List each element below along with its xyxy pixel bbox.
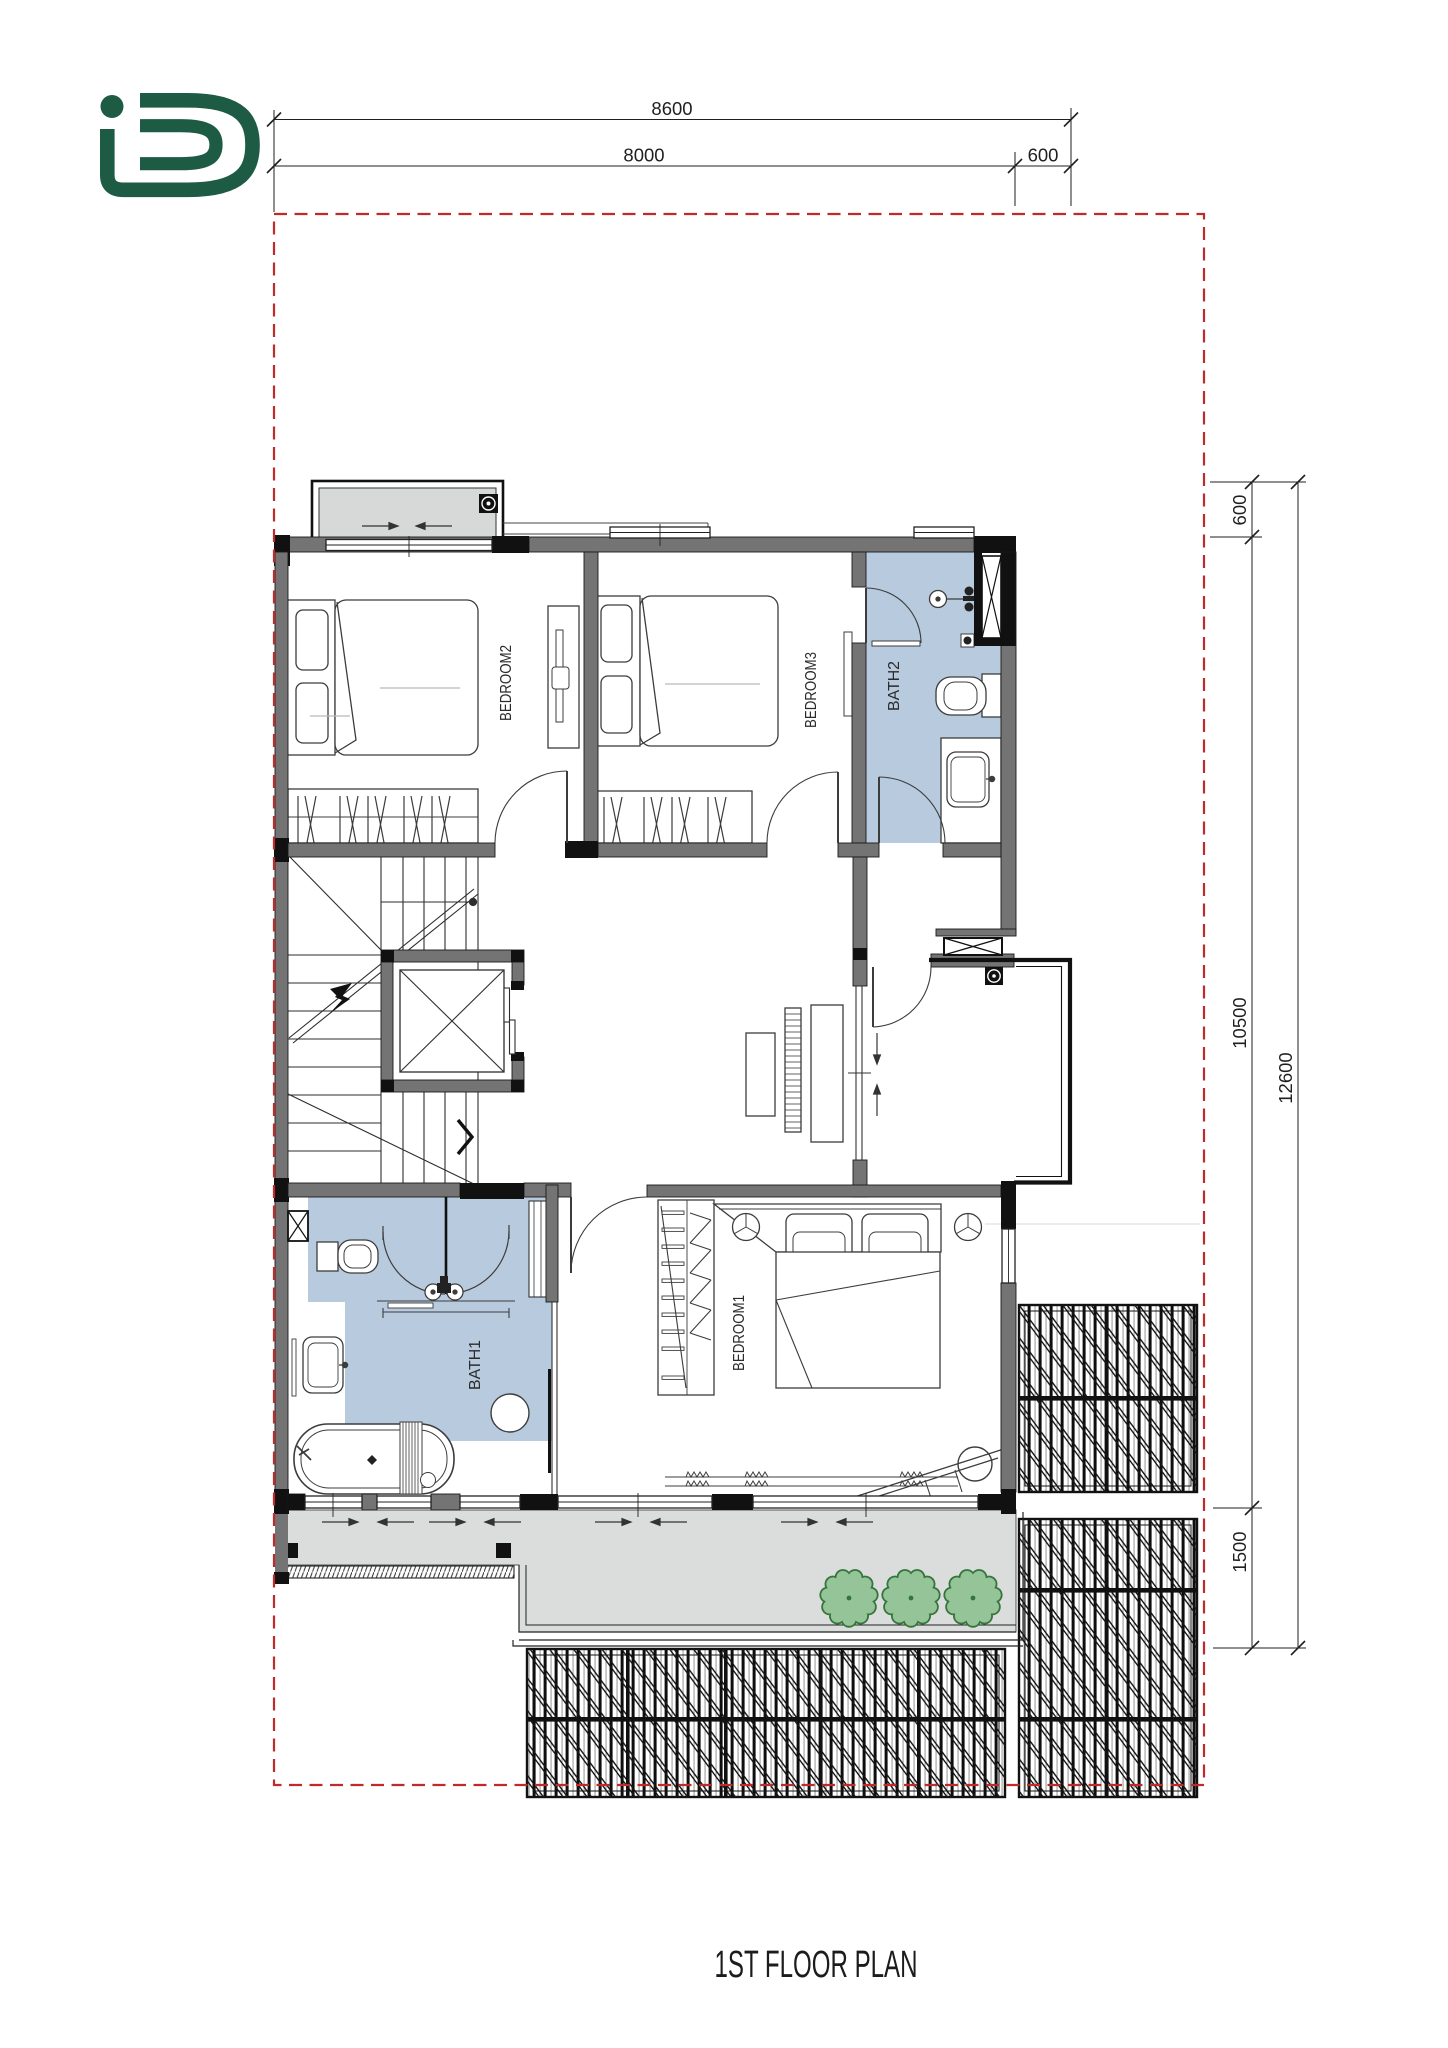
svg-text:12600: 12600 bbox=[1275, 1052, 1296, 1103]
svg-text:BATH2: BATH2 bbox=[886, 661, 903, 711]
svg-text:1ST FLOOR PLAN: 1ST FLOOR PLAN bbox=[715, 1944, 918, 1986]
svg-text:600: 600 bbox=[1028, 145, 1059, 166]
svg-text:10500: 10500 bbox=[1229, 997, 1250, 1048]
svg-text:8000: 8000 bbox=[623, 145, 664, 166]
svg-text:BEDROOM1: BEDROOM1 bbox=[731, 1295, 748, 1371]
svg-text:BEDROOM2: BEDROOM2 bbox=[498, 645, 515, 721]
svg-text:600: 600 bbox=[1229, 495, 1250, 526]
svg-text:8600: 8600 bbox=[651, 98, 692, 119]
svg-text:BATH1: BATH1 bbox=[467, 1340, 484, 1390]
svg-text:1500: 1500 bbox=[1229, 1531, 1250, 1572]
svg-text:BEDROOM3: BEDROOM3 bbox=[803, 652, 820, 728]
